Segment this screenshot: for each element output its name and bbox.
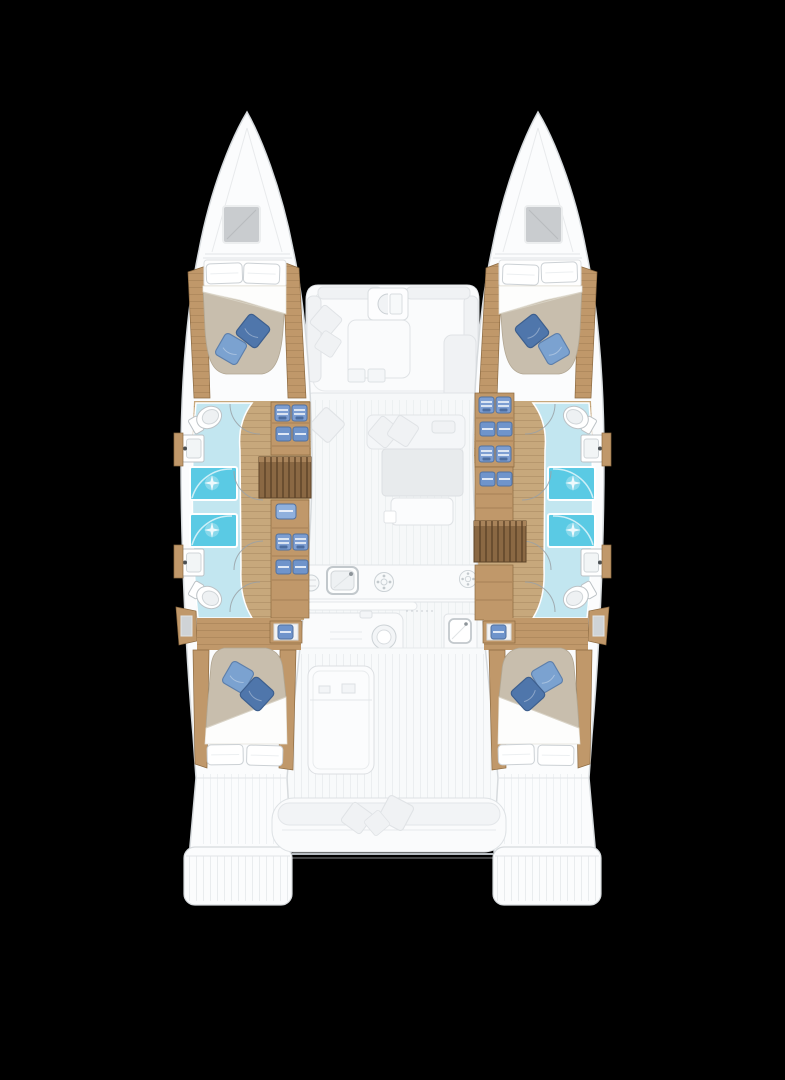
- aft-bench: [272, 794, 506, 852]
- stove-burner: [459, 570, 476, 587]
- folded-linen: [292, 405, 307, 421]
- white-pillow: [538, 745, 574, 766]
- companionway-stairs: [474, 521, 526, 562]
- companionway-stairs: [259, 457, 311, 498]
- washbasin: [182, 549, 204, 576]
- sofa-pillow: [432, 421, 455, 433]
- folded-linen: [293, 560, 308, 574]
- white-pillow: [502, 264, 539, 285]
- saloon-table: [391, 498, 453, 525]
- white-pillow: [207, 744, 243, 765]
- shower: [548, 467, 595, 500]
- washbasin: [182, 435, 204, 462]
- handrail: [307, 602, 417, 610]
- folded-linen: [491, 625, 506, 639]
- starboard-stern: [493, 774, 601, 905]
- bench-cushion: [406, 287, 470, 299]
- island-sink-bowl: [377, 630, 391, 644]
- aft-cabinet: [270, 621, 302, 643]
- port-companionway: [259, 457, 311, 498]
- bow-hatch: [223, 206, 260, 243]
- folded-linen: [293, 427, 308, 441]
- folded-linen: [496, 446, 511, 462]
- cabin-floor-wood: [576, 650, 592, 768]
- stove-burner: [375, 573, 394, 592]
- center-deck: [281, 285, 503, 848]
- folded-linen: [497, 472, 512, 486]
- starboard-forward-berth: [499, 260, 582, 374]
- sofa-seat: [382, 449, 463, 496]
- shower: [190, 514, 237, 547]
- table-leg: [384, 511, 396, 523]
- counter-tab: [360, 611, 372, 618]
- shower: [548, 514, 595, 547]
- cockpit-table: [308, 666, 374, 774]
- port-forward-berth: [203, 260, 286, 374]
- outboard-locker: [602, 433, 611, 466]
- forward-cockpit: [306, 285, 479, 405]
- wardrobe-cabinet: [475, 565, 513, 620]
- starboard-stern-platform: [493, 847, 601, 905]
- bow-hatch: [525, 206, 562, 243]
- module-sink: [449, 619, 471, 643]
- step-box: [368, 369, 385, 382]
- starboard-wardrobes: [475, 393, 514, 620]
- outboard-locker: [602, 545, 611, 578]
- white-pillow: [243, 263, 280, 284]
- folded-linen: [278, 625, 293, 639]
- folded-linen: [276, 427, 291, 441]
- folded-linen: [480, 422, 495, 436]
- folded-linen: [480, 472, 495, 486]
- white-pillow: [206, 263, 243, 284]
- galley-sink: [327, 567, 358, 594]
- folded-linen: [497, 422, 512, 436]
- starboard-companionway: [474, 521, 526, 562]
- white-pillow: [246, 745, 283, 766]
- washbasin: [581, 435, 603, 462]
- folded-linen: [293, 534, 308, 550]
- folded-linen: [496, 397, 511, 413]
- shower: [190, 467, 237, 500]
- starboard-aft-berth: [498, 648, 580, 766]
- folded-linen: [276, 560, 291, 574]
- folded-linen: [276, 534, 291, 550]
- outboard-hanging-locker: [176, 607, 197, 645]
- stair-top: [259, 457, 311, 462]
- white-pillow: [498, 744, 535, 765]
- forward-coffee-table: [368, 288, 408, 320]
- outboard-hanging-locker: [588, 607, 609, 645]
- stair-top: [474, 521, 526, 526]
- platform-texture: [188, 856, 288, 901]
- folded-linen: [275, 405, 290, 421]
- white-pillow: [541, 262, 578, 283]
- folded-linen: [479, 397, 494, 413]
- outboard-locker: [174, 545, 183, 578]
- catamaran-floor-plan: [0, 0, 785, 1080]
- step-box: [348, 369, 365, 382]
- port-aft-cabin: [193, 618, 302, 770]
- folded-linen: [479, 446, 494, 462]
- platform-texture: [497, 856, 597, 901]
- transom-deck-texture: [500, 774, 588, 844]
- port-wardrobes: [271, 402, 310, 618]
- port-stern-platform: [184, 847, 292, 905]
- aft-cabinet: [483, 621, 515, 643]
- outboard-locker: [174, 433, 183, 466]
- washbasin: [581, 549, 603, 576]
